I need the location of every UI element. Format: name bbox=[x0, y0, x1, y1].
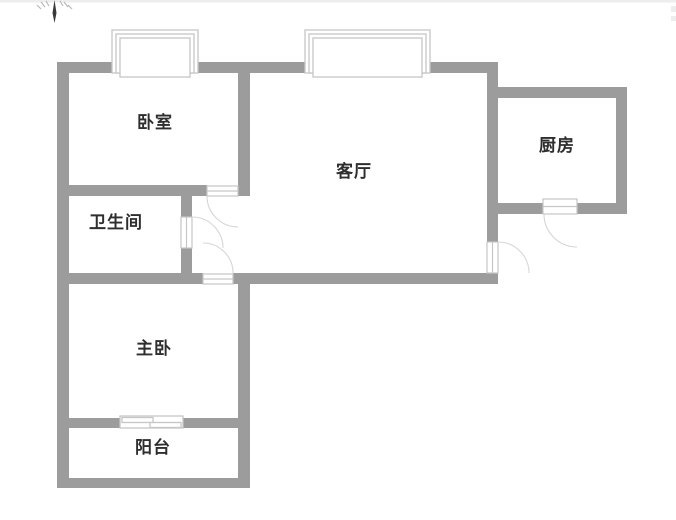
entry-door bbox=[487, 242, 498, 273]
bay-window-inner-frame bbox=[120, 38, 190, 77]
sliding-window-panel bbox=[150, 423, 181, 428]
balcony-label: 阳台 bbox=[135, 437, 171, 458]
living-room-bay-window bbox=[305, 30, 430, 77]
wall-bedroom-bottom bbox=[57, 185, 207, 196]
top-edge-strip bbox=[0, 0, 676, 3]
wall-master-right bbox=[238, 273, 250, 488]
wall-kitchen-right bbox=[616, 87, 627, 214]
wall-balcony-bottom bbox=[57, 478, 250, 488]
floor-plan-page: 卧室 客厅 厨房 卫生间 主卧 阳台 bbox=[0, 0, 676, 520]
master-bedroom-door bbox=[203, 274, 233, 284]
wall-bathroom-right-upper bbox=[181, 196, 192, 217]
bay-window-inner-frame bbox=[313, 38, 422, 77]
kitchen-door-arc bbox=[544, 214, 577, 247]
north-arrow-needle bbox=[53, 0, 57, 23]
floor-plan: 卧室 客厅 厨房 卫生间 主卧 阳台 bbox=[0, 0, 676, 520]
balcony-sliding-window bbox=[120, 416, 183, 428]
wall-master-balcony-right bbox=[183, 418, 250, 428]
bedroom-bay-window bbox=[112, 30, 198, 77]
wall-bedroom-living-divider bbox=[238, 62, 250, 196]
wall-kitchen-bottom-right bbox=[577, 203, 627, 214]
bedroom-label: 卧室 bbox=[137, 112, 173, 133]
master-bedroom-label: 主卧 bbox=[136, 338, 172, 359]
edge-artifacts bbox=[0, 0, 676, 21]
right-edge-mark bbox=[671, 6, 676, 12]
door-leaves bbox=[181, 186, 577, 284]
living-room-label: 客厅 bbox=[335, 161, 372, 182]
bedroom-door bbox=[207, 186, 238, 196]
wall-bathroom-right-lower bbox=[181, 248, 192, 273]
wall-master-balcony-left bbox=[57, 418, 120, 428]
wall-kitchen-top bbox=[490, 87, 627, 98]
wall-corridor-bottom-right bbox=[233, 273, 498, 284]
kitchen-label: 厨房 bbox=[539, 135, 575, 156]
room-labels: 卧室 客厅 厨房 卫生间 主卧 阳台 bbox=[89, 112, 575, 458]
sliding-window-panel bbox=[122, 418, 153, 423]
wall-corridor-bottom-left bbox=[57, 273, 203, 284]
entry-door-arc bbox=[498, 242, 529, 273]
windows bbox=[112, 30, 430, 428]
north-arrow-icon bbox=[37, 0, 72, 23]
kitchen-door bbox=[543, 199, 577, 214]
right-edge-mark bbox=[671, 16, 676, 21]
wall-kitchen-bottom-left bbox=[490, 203, 543, 214]
wall-top-segment bbox=[198, 62, 305, 73]
master-bedroom-door-arc bbox=[203, 243, 233, 273]
bathroom-label: 卫生间 bbox=[89, 212, 143, 233]
bedroom-door-arc bbox=[207, 196, 238, 227]
bathroom-door bbox=[181, 217, 192, 248]
wall-top-segment bbox=[57, 62, 112, 73]
